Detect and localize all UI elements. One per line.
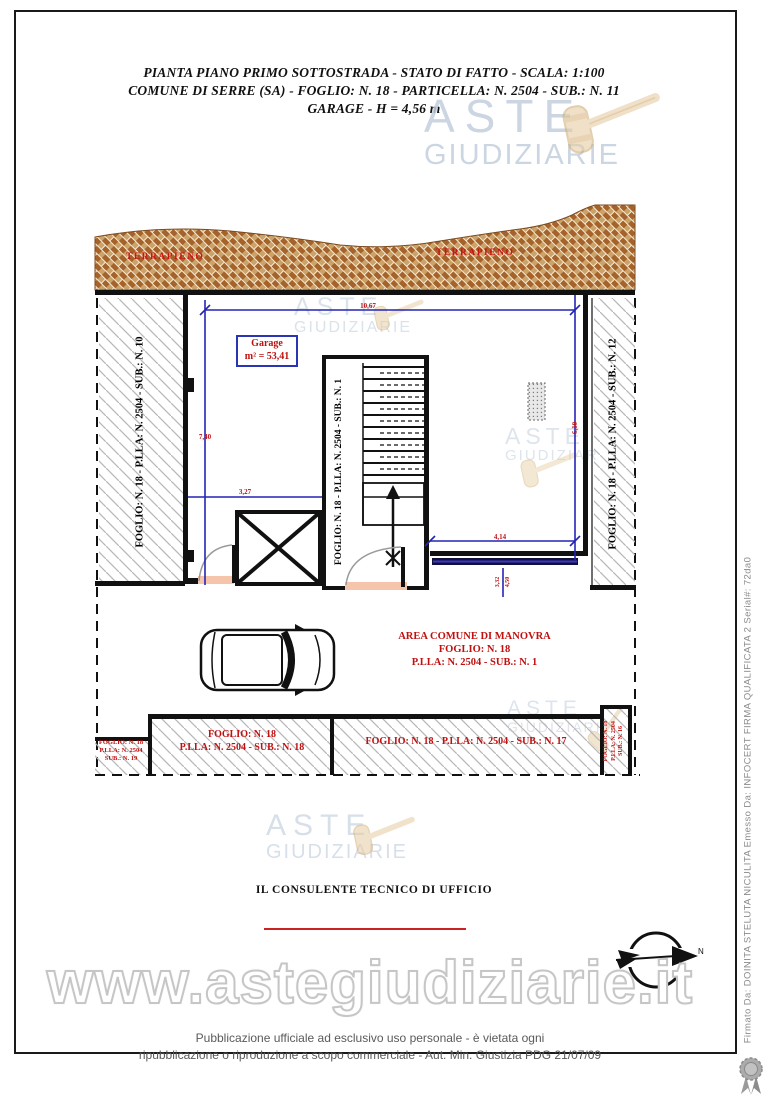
dim-bottom: 4,14 bbox=[494, 533, 506, 541]
dim-inner: 3,27 bbox=[239, 488, 251, 496]
document-page: PIANTA PIANO PRIMO SOTTOSTRADA - STATO D… bbox=[0, 0, 767, 1098]
dim-right: 6,10 bbox=[571, 422, 579, 434]
signature-line bbox=[264, 928, 466, 930]
dim-door-a: 3,32 bbox=[495, 577, 501, 588]
url-watermark: www.astegiudiziarie.it bbox=[0, 948, 740, 1017]
parcel-label-sub18: FOGLIO: N. 18 P.LLA: N. 2504 - SUB.: N. … bbox=[158, 728, 326, 754]
garage-area-box: Garage m² = 53,41 bbox=[236, 335, 298, 367]
floor-plan-drawing bbox=[80, 195, 650, 795]
parcel-label-sub1: FOGLIO: N. 18 - P.LLA: N. 2504 - SUB.: N… bbox=[334, 379, 344, 565]
parcel-label-sub16: FOGLIO: N. 18 P.LLA: N. 2504 SUB.: N. 16 bbox=[603, 706, 626, 776]
gavel-icon bbox=[344, 812, 420, 862]
dim-door-b: 4,50 bbox=[505, 577, 511, 588]
terrapieno-label-right: TERRAPIENO bbox=[436, 248, 514, 258]
seal-ribbon-icon bbox=[738, 1056, 764, 1096]
footer-line-1: Pubblicazione ufficiale ad esclusivo uso… bbox=[0, 1031, 740, 1045]
footer-line-2: ripubblicazione o riproduzione a scopo c… bbox=[0, 1048, 740, 1062]
car-icon bbox=[198, 622, 338, 698]
parcel-label-sub10: FOGLIO: N. 18 - P.LLA: N. 2504 - SUB.: N… bbox=[135, 336, 146, 547]
terrapieno-area bbox=[95, 205, 635, 290]
parcel-label-sub19: FOGLIO: N. 18 P.LLA: N. 2504 SUB.: N. 19 bbox=[96, 739, 146, 763]
dim-top: 10,67 bbox=[360, 302, 376, 310]
parcel-label-sub12: FOGLIO: N. 18 - P.LLA: N. 2504 - SUB.: N… bbox=[608, 338, 619, 549]
parcel-label-sub17: FOGLIO: N. 18 - P.LLA: N. 2504 - SUB.: N… bbox=[336, 736, 596, 747]
garage-door-bar bbox=[432, 558, 578, 565]
digital-signature-text: Firmato Da: DOINITA STELUTA NICULITA Eme… bbox=[743, 557, 754, 1044]
garage-name: Garage bbox=[238, 337, 296, 350]
garage-area-value: m² = 53,41 bbox=[238, 350, 296, 363]
consultant-title: IL CONSULENTE TECNICO DI UFFICIO bbox=[24, 884, 724, 896]
pillar bbox=[528, 383, 545, 420]
title-line-1: PIANTA PIANO PRIMO SOTTOSTRADA - STATO D… bbox=[24, 64, 724, 82]
gavel-icon bbox=[548, 86, 668, 164]
terrapieno-label-left: TERRAPIENO bbox=[126, 252, 204, 262]
shaft-x-box bbox=[237, 512, 320, 584]
manovra-label: AREA COMUNE DI MANOVRA FOGLIO: N. 18 P.L… bbox=[372, 630, 577, 669]
dim-left: 7,40 bbox=[199, 433, 211, 441]
